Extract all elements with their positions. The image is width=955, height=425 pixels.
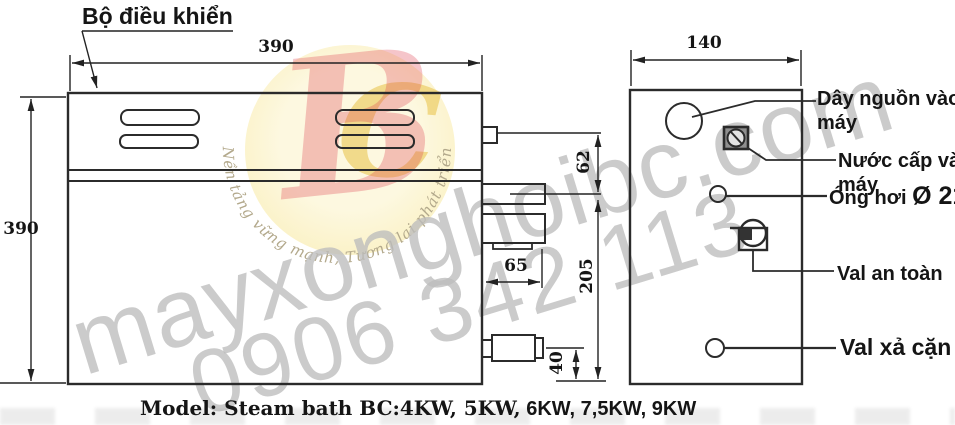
- water-supply-label-line1: Nước cấp vào: [838, 149, 955, 173]
- dim-front-height: 390: [0, 219, 45, 239]
- drain-valve-hole: [706, 339, 724, 357]
- safety-valve-label: Val an toàn: [837, 262, 943, 286]
- dim-side-width: 140: [679, 33, 729, 53]
- safety-valve-body: [740, 229, 752, 240]
- drain-valve-label: Val xả cặn: [840, 335, 951, 359]
- leader-power-cord: [692, 101, 816, 117]
- vent-slots: [120, 110, 414, 148]
- side-tab-connector: [482, 127, 497, 143]
- control-unit-label: Bộ điều khiển: [82, 3, 233, 30]
- drain-pipe: [482, 335, 543, 361]
- steam-pipe-diameter: Ø 21: [912, 182, 955, 210]
- side-view: [630, 90, 802, 384]
- dimension-lines: [0, 31, 801, 383]
- steam-pipe-label: Óng hơi Ø 21: [829, 184, 955, 210]
- dim-205: 205: [577, 251, 597, 301]
- water-supply-fitting: [724, 127, 748, 149]
- power-cord-label-line1: Dây nguồn vào: [817, 87, 955, 111]
- model-caption: Model: Steam bath BC:4KW, 5KW, 6KW, 7,5K…: [140, 396, 670, 421]
- dim-front-width: 390: [251, 37, 301, 57]
- water-inlet-notch: [493, 243, 532, 249]
- steam-pipe-label-text: Óng hơi: [829, 187, 907, 209]
- diagram-canvas: C B Nền tảng vững mạnh, Tương lai phát t…: [0, 0, 955, 425]
- drain-pipe-flange: [482, 340, 492, 357]
- front-view: [68, 93, 545, 384]
- drain-pipe-body: [492, 335, 535, 361]
- model-caption-sans: 6KW, 7,5KW, 9KW: [521, 398, 697, 420]
- model-caption-serif: Model: Steam bath BC:4KW, 5KW,: [140, 396, 521, 420]
- dim-40: 40: [547, 338, 567, 388]
- vent-slot: [121, 110, 199, 125]
- leader-safety-valve: [753, 250, 834, 271]
- water-inlet-box: [482, 214, 545, 243]
- dim-62: 62: [574, 137, 594, 187]
- diagram-linework: [0, 0, 955, 425]
- steam-pipe-hole: [710, 186, 726, 202]
- safety-valve-symbol: [730, 220, 767, 250]
- vent-slot: [336, 135, 414, 148]
- dim-65: 65: [491, 256, 541, 276]
- leader-control-unit: [82, 31, 97, 88]
- vent-slot: [120, 135, 198, 148]
- power-cord-hole: [666, 103, 702, 139]
- vent-slot: [336, 110, 414, 125]
- drain-pipe-cap: [535, 338, 543, 358]
- front-view-outline: [68, 93, 482, 384]
- power-cord-label: Dây nguồn vào máy: [817, 87, 955, 135]
- power-cord-label-line2: máy: [817, 111, 955, 135]
- leader-water-supply: [748, 148, 836, 160]
